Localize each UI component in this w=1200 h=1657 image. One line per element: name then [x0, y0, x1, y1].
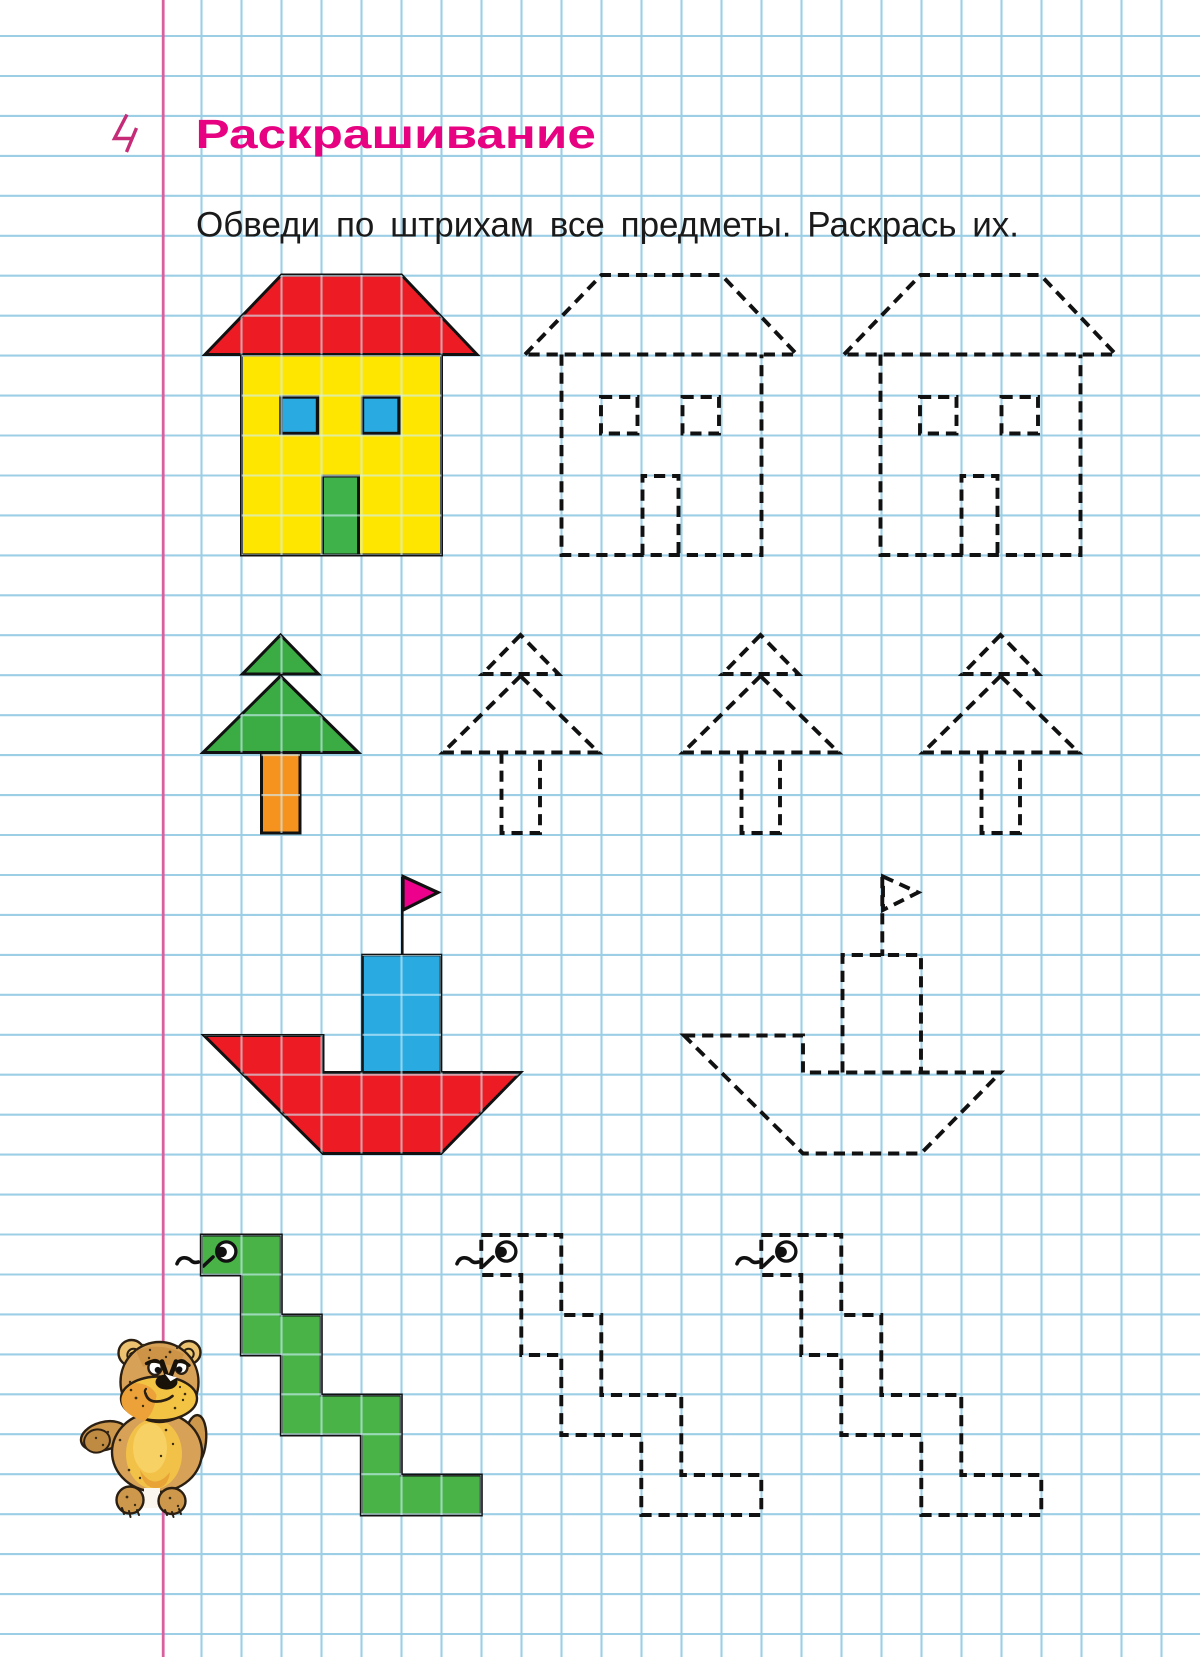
svg-text:Раскрашивание: Раскрашивание	[196, 111, 596, 157]
svg-text:Обведи по штрихам все предметы: Обведи по штрихам все предметы. Раскрась…	[196, 206, 1019, 245]
